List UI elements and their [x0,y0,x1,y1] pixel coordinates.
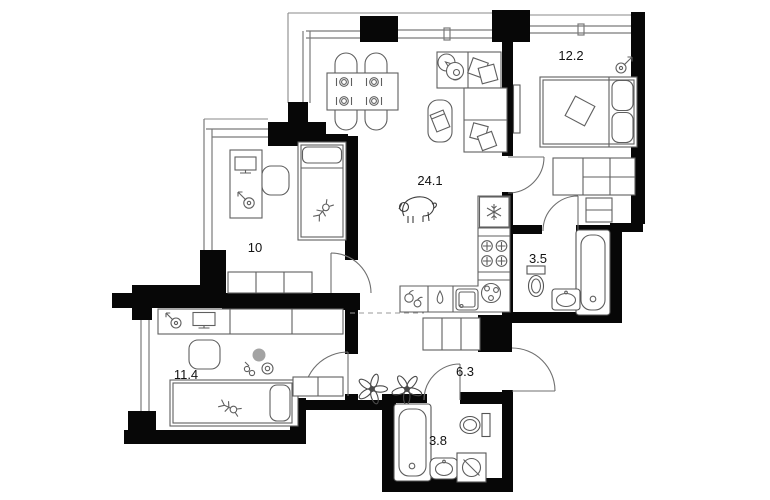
room-label-kids-room: 10 [248,240,262,255]
room-label-hallway: 6.3 [456,364,474,379]
wardrobe-icon [423,318,480,350]
bathtub-icon [394,404,431,481]
single-bed-icon [298,142,346,240]
dog-icon [399,197,436,223]
desk-chair-icon [189,340,220,369]
toilet-icon [460,414,490,437]
bathroom-ensuite-door [543,196,578,231]
room-label-kids-room-2: 11.4 [174,367,198,382]
room-label-bedroom: 12.2 [558,48,583,63]
washbasin-icon [430,458,458,479]
kitchen-counter [400,196,510,312]
room-label-living: 24.1 [417,173,442,188]
wardrobe-icon [293,377,343,396]
bathroom-door [424,364,460,400]
room-label-bathroom: 3.8 [429,433,447,448]
floor-plan: 24.1 12.2 3.5 10 11.4 6.3 3.8 [0,0,770,500]
bathtub-icon [576,230,610,315]
washing-machine-icon [457,453,486,482]
fridge-icon [480,197,510,227]
wardrobe-icon [228,272,312,293]
entry-door [512,348,555,391]
bedroom-door [508,157,544,193]
washbasin-icon [552,289,580,310]
tv-icon [514,85,521,133]
desk-icon [158,309,343,334]
floor-plan-canvas: 24.1 12.2 3.5 10 11.4 6.3 3.8 [0,0,770,500]
desk-icon [230,150,262,218]
room-label-bathroom-ensuite: 3.5 [529,251,547,266]
coffee-table-icon [428,100,452,142]
desk-chair-icon [262,166,289,195]
dining-table-icon [327,53,398,130]
double-bed-icon [540,77,637,147]
lamp-icon [616,57,632,73]
wardrobe-icon [553,158,635,222]
toys-icon [244,349,273,376]
toilet-icon [527,266,545,297]
single-bed-icon [170,380,298,426]
